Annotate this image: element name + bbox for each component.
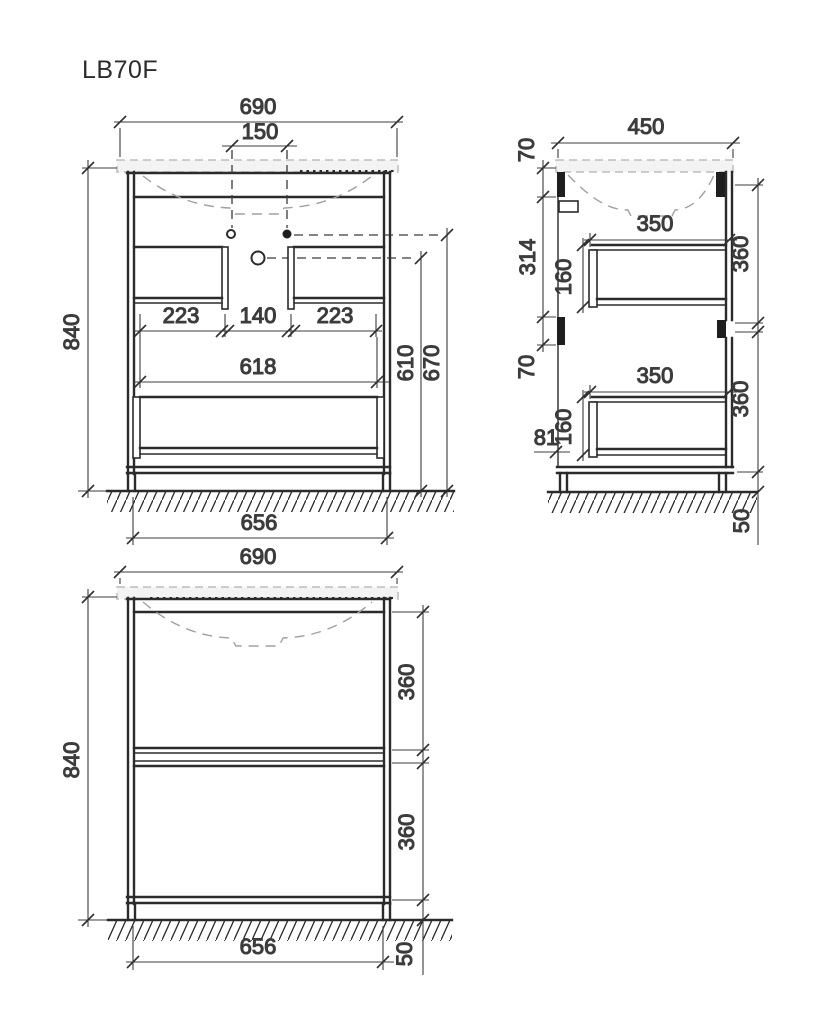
- dim-label: 690: [240, 94, 277, 119]
- drawing-title: LB70F: [82, 56, 158, 84]
- dim-label: 360: [394, 814, 419, 851]
- dim-lower-drawer-depth: 350: [584, 363, 737, 399]
- dim-label: 223: [317, 303, 354, 328]
- lower-drawer-box: [589, 397, 726, 457]
- dim-label: 150: [242, 119, 279, 144]
- countertop: [556, 160, 733, 172]
- countertop: [117, 160, 398, 172]
- lower-drawer-box: [133, 397, 384, 458]
- dim-label: 618: [240, 354, 277, 379]
- dim-label: 670: [419, 345, 444, 382]
- dim-label: 360: [728, 381, 753, 418]
- drain-hole: [252, 252, 265, 265]
- dim-label: 350: [637, 363, 674, 388]
- dim-label: 656: [241, 510, 278, 535]
- legs: [560, 473, 726, 492]
- dim-label: 350: [637, 211, 674, 236]
- dim-label: 81: [534, 425, 558, 450]
- countertop: [117, 587, 398, 599]
- technical-drawing: LB70F: [0, 0, 835, 1024]
- dim-label: 840: [59, 314, 84, 351]
- legs: [128, 473, 390, 491]
- upper-drawer-box: [589, 245, 726, 307]
- basin-hidden-outline: [143, 602, 372, 646]
- front-carcass-view: 690 150 840 223 140 223 618: [59, 94, 454, 545]
- side-view: 450 70 314 70 350 160 350: [514, 114, 764, 545]
- dim-upper-drawer-side: 160: [551, 238, 589, 313]
- dim-box-widths: 223 140 223: [134, 303, 382, 337]
- wall-bracket-mid: [557, 317, 565, 345]
- drawer-handle-upper: [716, 172, 725, 197]
- dim-label: 450: [628, 114, 665, 139]
- dim-label: 70: [514, 138, 539, 162]
- dim-label: 360: [394, 664, 419, 701]
- dim-label: 70: [514, 355, 539, 379]
- dim-right-stack: 360 360 50: [728, 178, 764, 545]
- fixing-tab: [559, 201, 578, 212]
- legs: [128, 903, 390, 920]
- dim-label: 223: [163, 303, 200, 328]
- drawer-handle-lower: [717, 320, 726, 338]
- dim-label: 360: [728, 236, 753, 273]
- dim-label: 160: [551, 259, 576, 296]
- dim-tap-spacing: 150: [222, 119, 297, 152]
- dim-left-stack: 70 314 70: [514, 138, 556, 379]
- tap-hole-left: [227, 230, 235, 238]
- ground-hatch: [108, 921, 452, 941]
- dim-label: 656: [240, 934, 277, 959]
- dim-label: 140: [240, 303, 277, 328]
- dim-label: 840: [59, 742, 84, 779]
- dim-label: 690: [240, 544, 277, 569]
- dim-label: 50: [392, 942, 417, 966]
- dim-label: 314: [515, 239, 540, 276]
- basin-hidden-outline: [143, 176, 372, 214]
- dim-overall-depth: 450: [551, 114, 740, 158]
- dim-label: 50: [729, 509, 754, 533]
- front-elevation-view: 690 840 360 360 50 656: [59, 544, 452, 975]
- ground-hatch: [548, 493, 757, 513]
- dim-upper-drawer-depth: 350: [584, 211, 737, 247]
- dim-overall-height: 840: [59, 589, 117, 927]
- basin-hidden-outline: [568, 175, 714, 216]
- wall-bracket-top: [557, 172, 565, 197]
- dim-inner-width: 618: [134, 337, 389, 388]
- dim-tap-height: 670: [419, 228, 453, 497]
- tap-hole-right: [283, 230, 292, 239]
- dim-overall-width: 690: [114, 544, 403, 584]
- dim-label: 610: [393, 345, 418, 382]
- dim-overall-height: 840: [59, 160, 117, 498]
- ground-hatch: [107, 492, 454, 512]
- drawer-divider: [134, 748, 384, 766]
